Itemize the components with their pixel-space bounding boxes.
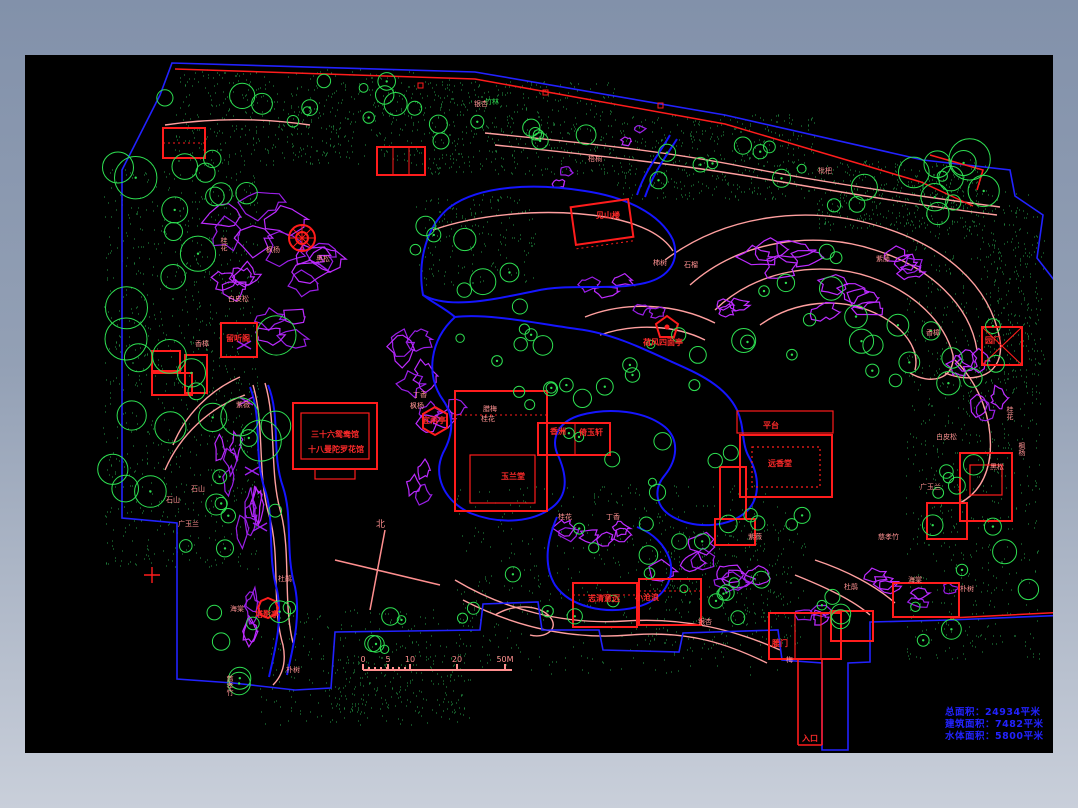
total-area: 总面积：24934平米	[945, 707, 1043, 719]
garden-plan-drawing	[25, 55, 1053, 753]
water-outline	[250, 135, 757, 677]
building-area: 建筑面积：7482平米	[945, 719, 1043, 731]
scale-tick-label: 10	[405, 655, 415, 664]
scale-tick-label: 50M	[496, 655, 513, 664]
scale-tick-label: 0	[360, 655, 365, 664]
area-statistics: 总面积：24934平米 建筑面积：7482平米 水体面积：5800平米	[945, 707, 1043, 743]
tree-circles	[98, 73, 1039, 695]
drawing-canvas[interactable]: 见山楼荷风四面亭平台远香堂香洲倚玉轩玉兰堂三十六鸳鸯馆十八曼陀罗花馆留听阁宜两亭…	[25, 55, 1053, 753]
north-compass	[335, 530, 440, 610]
scale-tick-label: 20	[452, 655, 462, 664]
water-area: 水体面积：5800平米	[945, 731, 1043, 743]
scale-tick-label: 5	[385, 655, 390, 664]
cad-viewer-frame: 见山楼荷风四面亭平台远香堂香洲倚玉轩玉兰堂三十六鸳鸯馆十八曼陀罗花馆留听阁宜两亭…	[0, 0, 1078, 808]
north-label: 北	[376, 517, 385, 530]
